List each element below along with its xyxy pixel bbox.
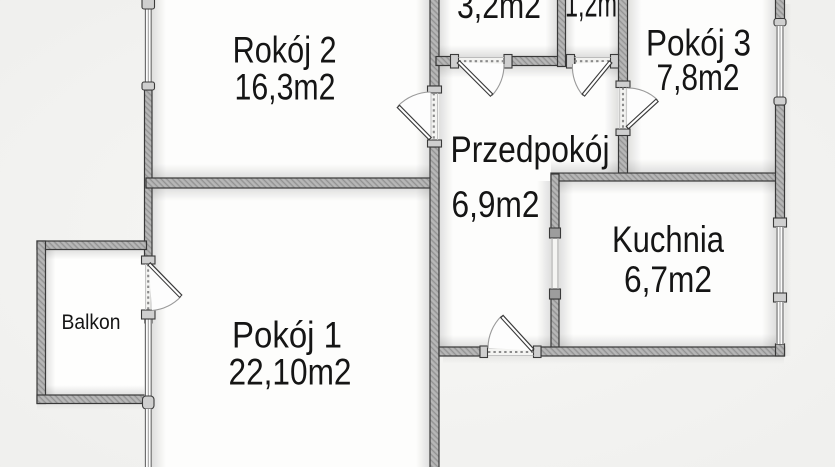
svg-text:6,7m2: 6,7m2 (624, 259, 712, 300)
svg-text:16,3m2: 16,3m2 (235, 67, 336, 108)
svg-text:3,2m2: 3,2m2 (457, 0, 541, 26)
svg-text:22,10m2: 22,10m2 (229, 352, 352, 393)
svg-text:Rokój 2: Rokój 2 (233, 30, 337, 71)
svg-text:Przedpokój: Przedpokój (451, 129, 610, 170)
svg-text:Kuchnia: Kuchnia (612, 219, 724, 260)
svg-text:Pokój 1: Pokój 1 (232, 315, 342, 356)
svg-text:Balkon: Balkon (62, 311, 121, 334)
svg-text:1,2m: 1,2m (565, 0, 617, 25)
svg-text:6,9m2: 6,9m2 (452, 184, 540, 225)
svg-text:7,8m2: 7,8m2 (657, 57, 740, 98)
